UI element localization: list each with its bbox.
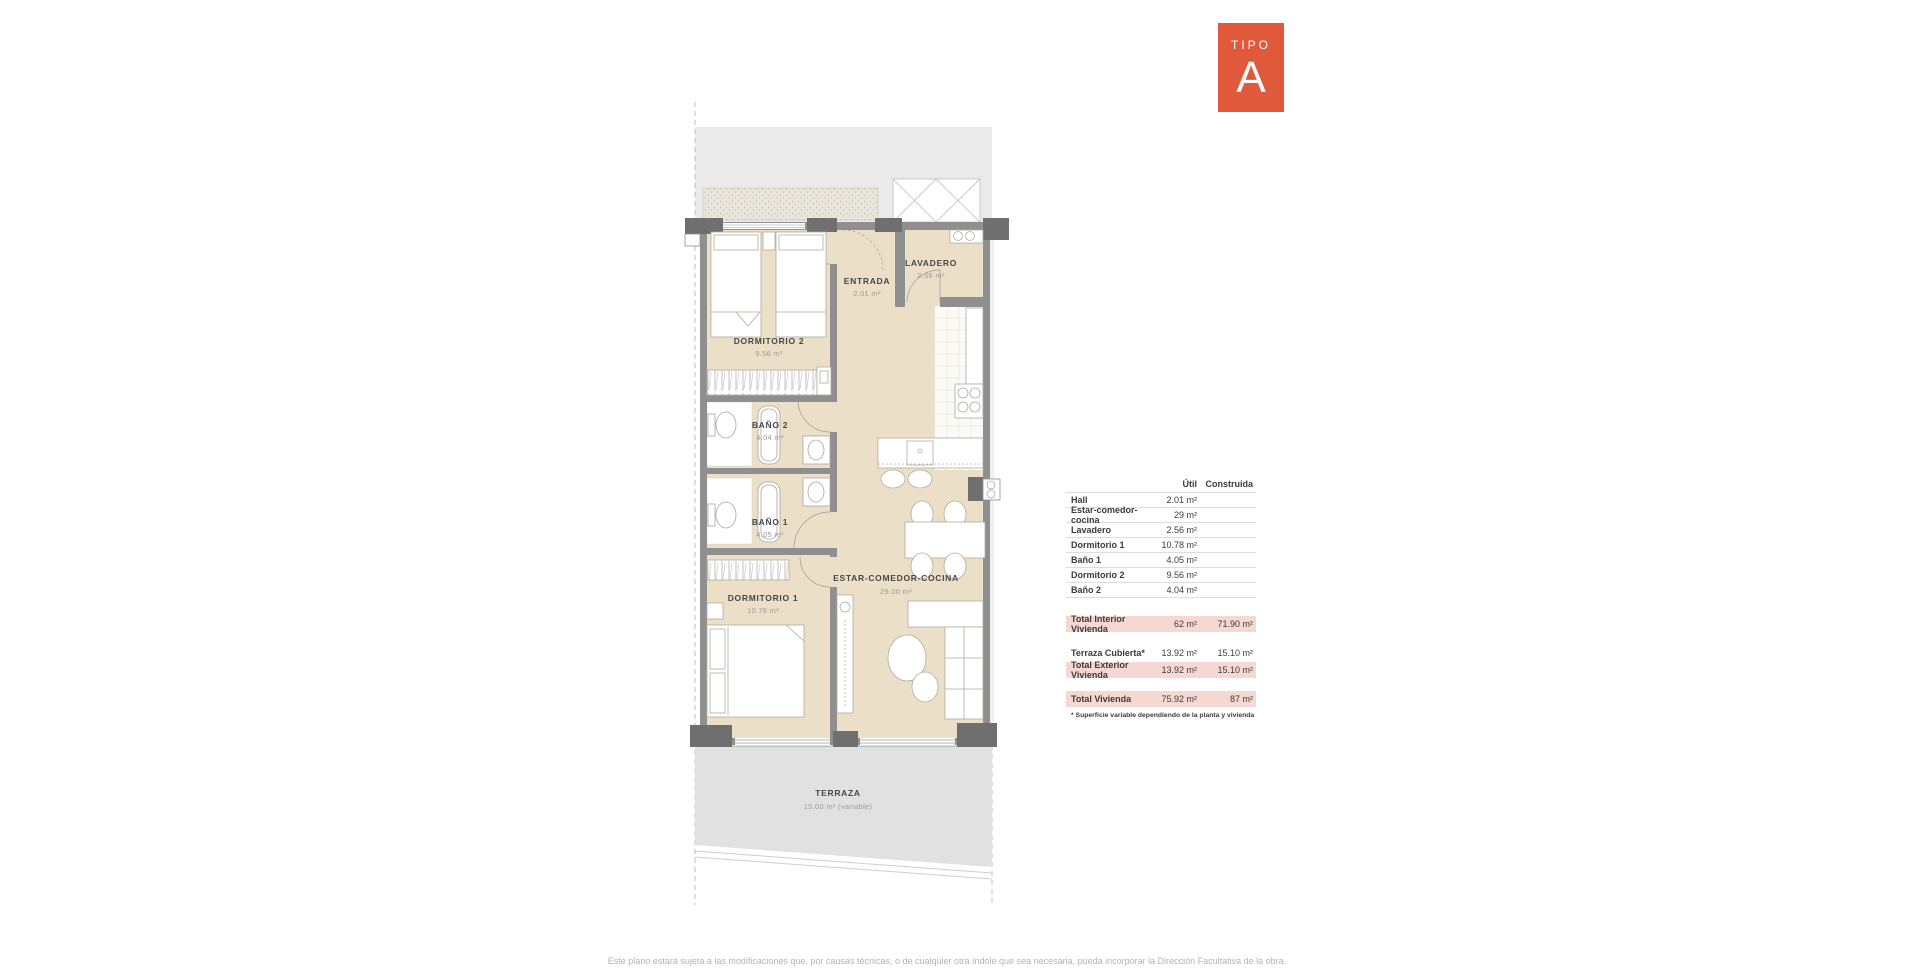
type-badge-letter: A [1218,52,1284,105]
room-area-lavadero: 2.56 m² [917,271,945,280]
room-area-bano2: 4.04 m² [756,433,784,442]
skylight-panel [893,179,980,222]
room-area-entrada: 2.01 m² [853,289,881,298]
room-label-dormitorio2: DORMITORIO 2 [734,336,805,346]
table-footnote: * Superficie variable dependiendo de la … [1066,712,1256,719]
room-area-bano1: 4.05 m² [756,530,784,539]
room-label-terraza: TERRAZA [815,788,861,798]
room-label-bano2: BAÑO 2 [752,420,788,430]
col-header-util: Útil [1149,479,1197,489]
table-row: Lavadero 2.56 m² [1066,523,1256,538]
room-area-estar: 29.00 m² [880,587,912,596]
room-area-dormitorio2: 9.56 m² [755,349,783,358]
room-rows: Hall 2.01 m² Estar-comedor-cocina 29 m² … [1066,492,1256,598]
terraza-cubierta-row: Terraza Cubierta* 13.92 m² 15.10 m² [1066,645,1256,661]
room-area-terraza: 15.00 m² (variable) [804,802,873,811]
meter-box [685,234,700,246]
total-exterior-row: Total Exterior Vivienda 13.92 m² 15.10 m… [1066,662,1256,678]
type-badge-label: TIPO [1218,23,1284,52]
total-vivienda-row: Total Vivienda 75.92 m² 87 m² [1066,691,1256,707]
table-row: Dormitorio 2 9.56 m² [1066,568,1256,583]
room-label-bano1: BAÑO 1 [752,517,788,527]
terrace [695,745,992,879]
room-label-estar: ESTAR-COMEDOR-COCINA [833,573,959,583]
room-label-lavadero: LAVADERO [905,258,957,268]
floor-plan: DORMITORIO 2 9.56 m² ENTRADA 2.01 m² LAV… [545,80,1025,910]
table-row: Dormitorio 1 10.78 m² [1066,538,1256,553]
room-label-entrada: ENTRADA [844,276,890,286]
room-area-dormitorio1: 10.78 m² [747,606,779,615]
plan-disclaimer: Este plano estará sujeta a las modificac… [447,956,1447,966]
area-table: Útil Construida Hall 2.01 m² Estar-comed… [1066,476,1256,719]
type-badge: TIPO A [1218,23,1284,112]
col-header-construida: Construida [1197,479,1253,489]
room-label-dormitorio1: DORMITORIO 1 [728,593,799,603]
table-header: Útil Construida [1066,476,1256,492]
table-row: Baño 1 4.05 m² [1066,553,1256,568]
upper-common-area [695,127,992,222]
table-row: Baño 2 4.04 m² [1066,583,1256,598]
table-row: Estar-comedor-cocina 29 m² [1066,508,1256,523]
total-interior-row: Total Interior Vivienda 62 m² 71.90 m² [1066,616,1256,632]
